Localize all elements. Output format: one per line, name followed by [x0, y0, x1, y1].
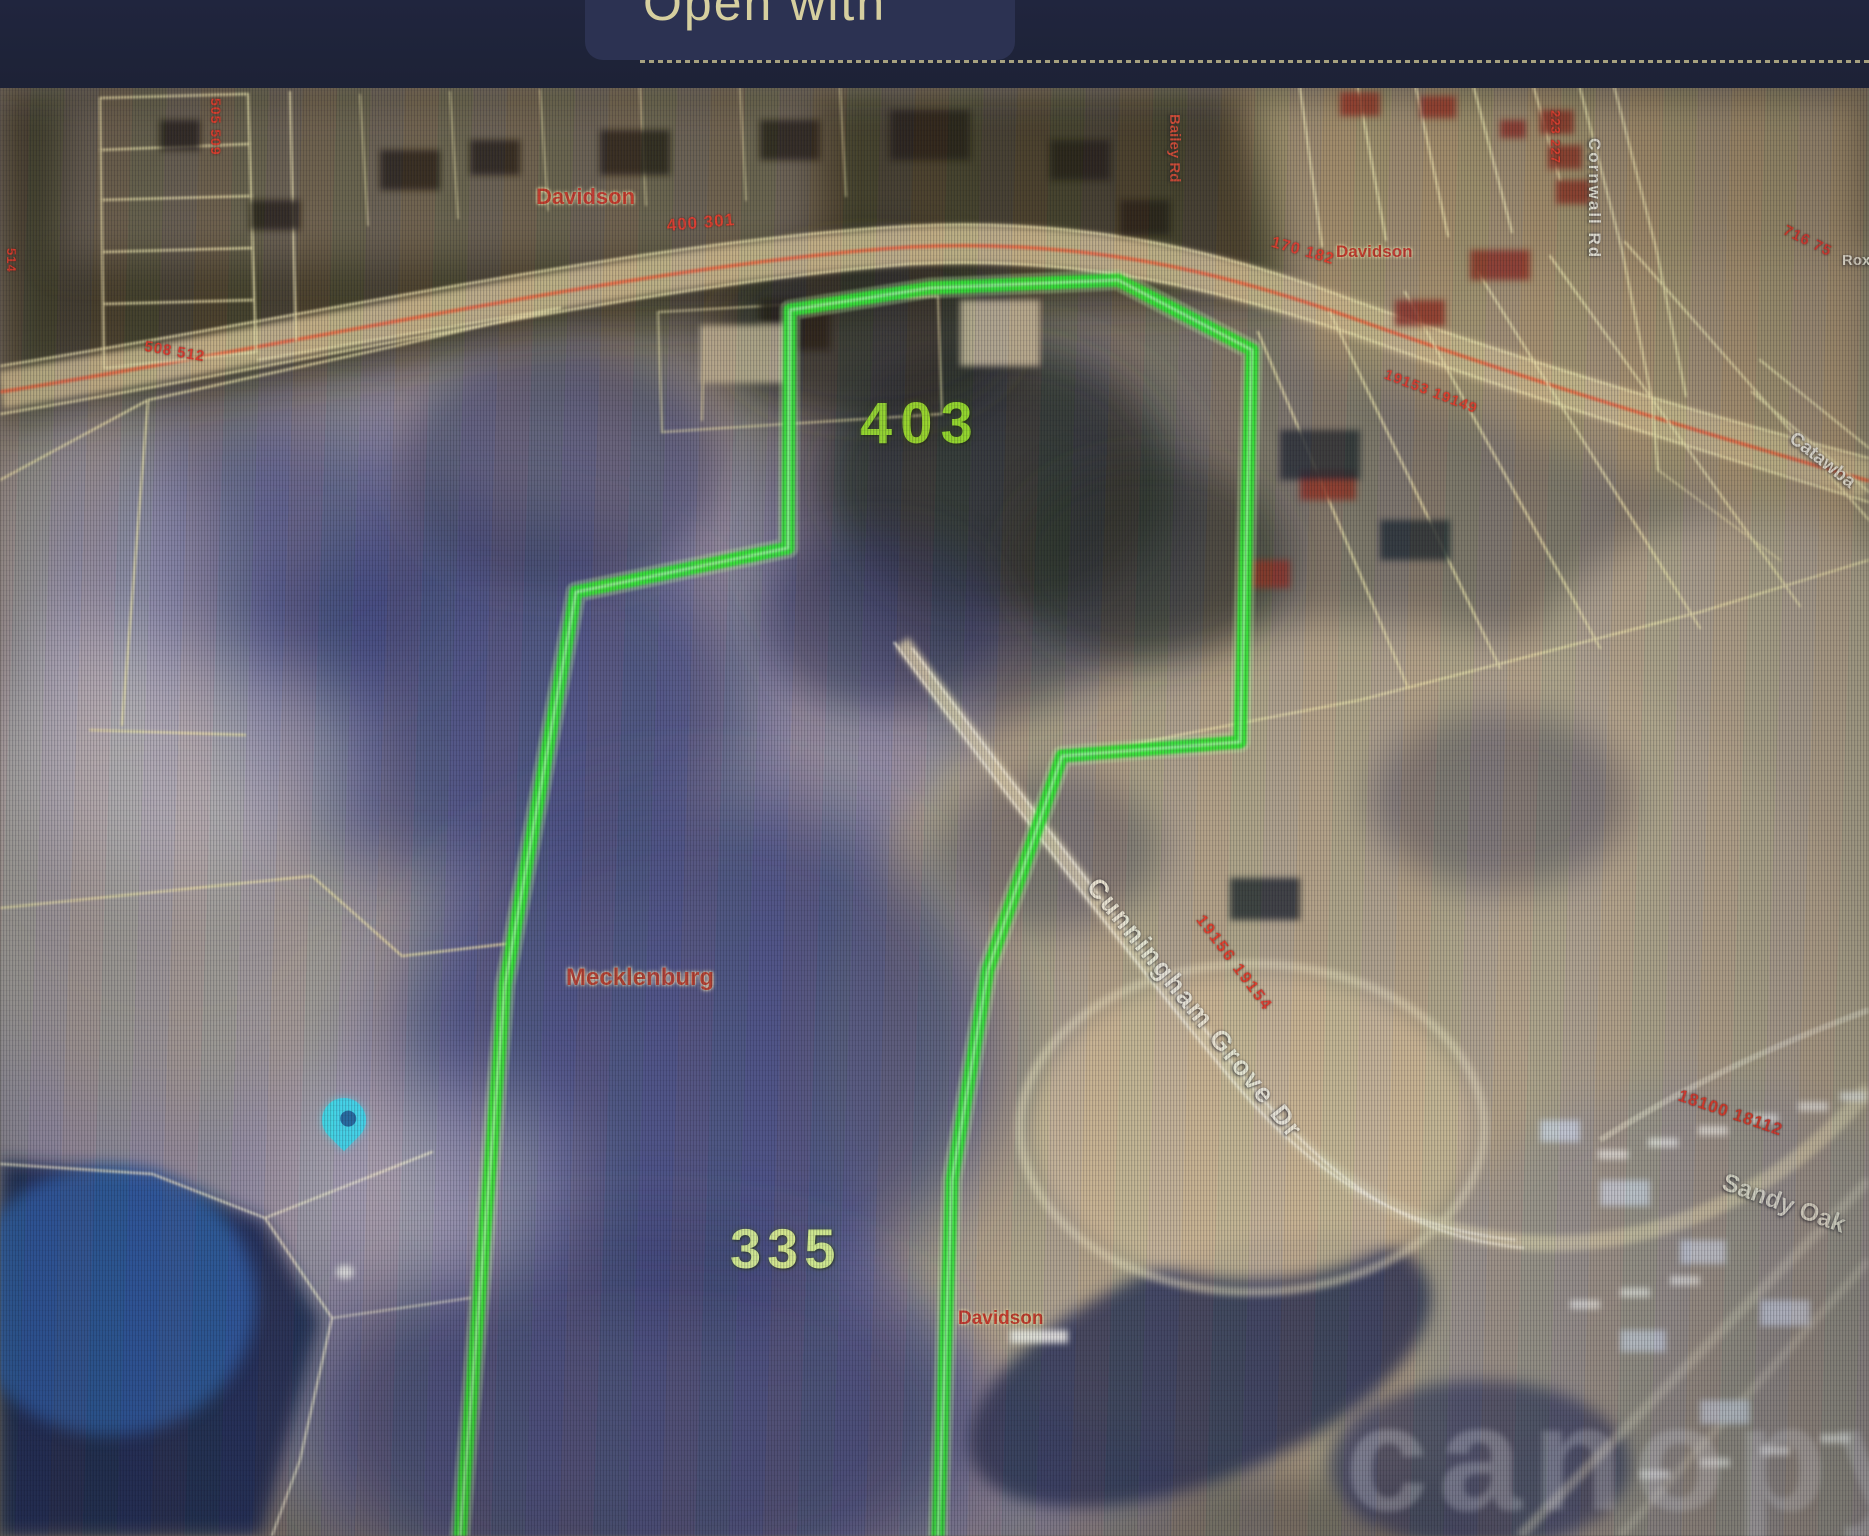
parcel-number-335: 335	[730, 1216, 841, 1281]
pin-hole	[337, 1107, 360, 1130]
top-bar: Open with	[0, 0, 1869, 88]
street-label-rox: Rox	[1842, 252, 1869, 269]
county-label-mecklenburg: Mecklenburg	[566, 964, 714, 992]
address-label-514: 514	[4, 248, 19, 273]
screen: 403 335 Mecklenburg Davidson Davidson Da…	[0, 0, 1869, 1536]
parcel-map-canvas[interactable]: 403 335 Mecklenburg Davidson Davidson Da…	[0, 88, 1869, 1536]
parcel-number-403: 403	[860, 390, 981, 457]
town-label-davidson-nw: Davidson	[536, 184, 635, 210]
street-label-cornwall-rd: Cornwall Rd	[1584, 138, 1604, 259]
address-label-505-509: 505 509	[208, 98, 224, 156]
pin-body	[313, 1089, 375, 1151]
open-with-label: Open with	[643, 0, 886, 32]
map-pin-icon[interactable]	[318, 1096, 370, 1160]
road-line-through-scrim	[640, 60, 1869, 63]
town-label-davidson-ne: Davidson	[1336, 242, 1413, 262]
photo-watermark: canopy	[1345, 1372, 1869, 1536]
aerial-imagery	[0, 88, 1869, 1536]
open-with-sheet[interactable]: Open with	[585, 0, 1015, 60]
town-label-davidson-s: Davidson	[958, 1308, 1044, 1330]
address-label-223-227: 223 227	[1548, 110, 1563, 164]
street-label-bailey-rd: Bailey Rd	[1166, 114, 1183, 182]
